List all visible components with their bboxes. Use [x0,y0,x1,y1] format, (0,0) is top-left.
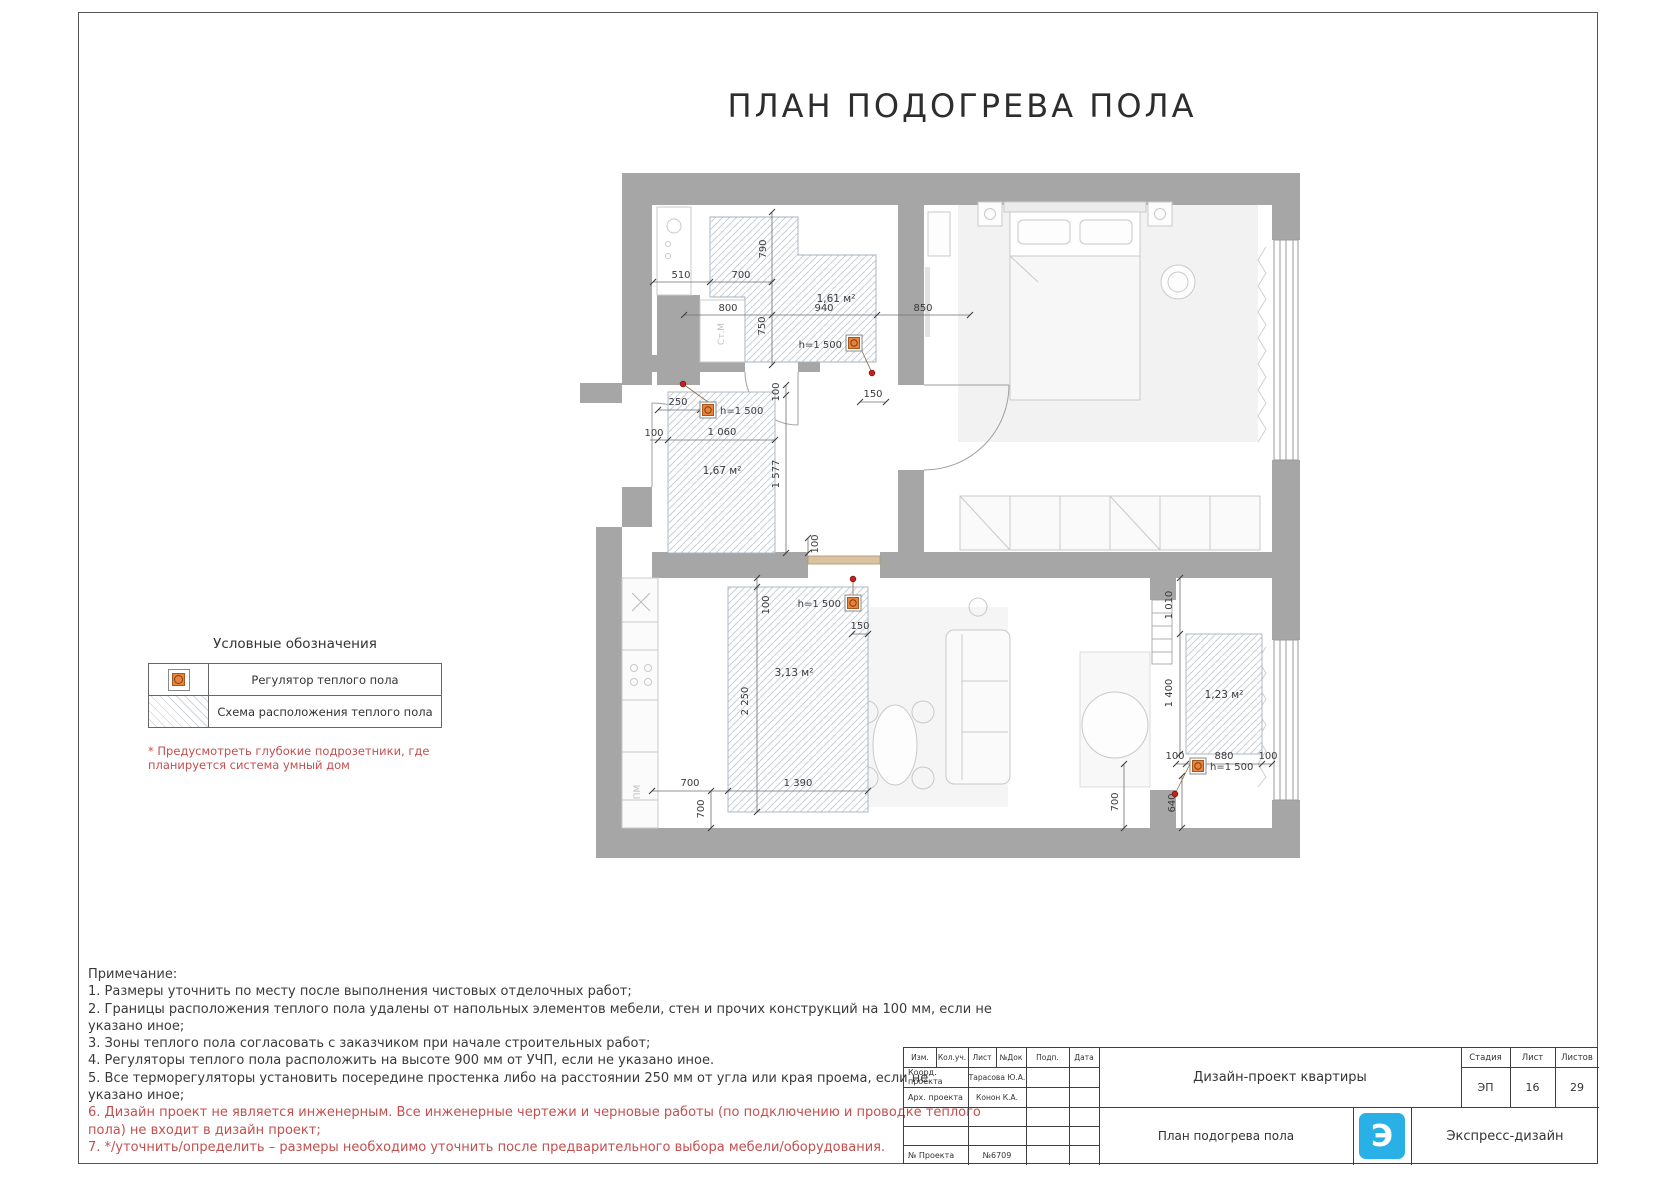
stamp-project-number: №6709 [968,1145,1026,1165]
note-line: 5. Все терморегуляторы установить посере… [88,1070,992,1087]
stamp-project-number-label: № Проекта [908,1145,968,1165]
regulator-icon [846,335,862,351]
svg-text:700: 700 [731,270,750,281]
legend-footnote: * Предусмотреть глубокие подрозетники, г… [148,744,484,772]
svg-text:1 060: 1 060 [708,427,737,438]
regulator-icon [700,402,716,418]
svg-text:h=1 500: h=1 500 [799,340,842,351]
sliding-door-panel [808,556,880,564]
stamp-stage-value: ЭП [1461,1067,1510,1107]
legend-item-label: Схема расположения теплого пола [209,696,441,727]
stamp-name-architect: Конон К.А. [968,1087,1026,1107]
regulator-icon [1190,758,1206,774]
svg-text:1 010: 1 010 [1164,591,1175,620]
svg-text:700: 700 [680,778,699,789]
note-line: 2. Границы расположения теплого пола уда… [88,1001,992,1018]
note-line: 3. Зоны теплого пола согласовать с заказ… [88,1035,992,1052]
svg-text:2 250: 2 250 [740,687,751,716]
notes-block: Примечание: 1. Размеры уточнить по месту… [88,966,992,1156]
stamp-name-coordinator: Тарасова Ю.А. [968,1067,1026,1087]
note-line: указано иное; [88,1087,992,1104]
svg-text:700: 700 [696,799,707,818]
stamp-sheet-label: Лист [1510,1048,1555,1067]
legend-row-heating-area: Схема расположения теплого пола [149,696,441,727]
svg-text:790: 790 [758,239,769,258]
svg-text:700: 700 [1110,792,1121,811]
svg-text:h=1 500: h=1 500 [1210,762,1253,773]
svg-text:880: 880 [1214,751,1233,762]
stamp-col-izm: Изм. [904,1048,936,1067]
legend-item-label: Регулятор теплого пола [209,664,441,695]
washing-machine-label: Ст.М [717,323,727,345]
svg-text:1 400: 1 400 [1164,679,1175,708]
title-block: Изм. Кол.уч. Лист №Док Подп. Дата Коорд.… [903,1047,1598,1164]
svg-text:100: 100 [1258,751,1277,762]
svg-text:1,23 м²: 1,23 м² [1205,689,1244,701]
svg-text:510: 510 [671,270,690,281]
svg-text:150: 150 [850,621,869,632]
stamp-sheet-value: 16 [1510,1067,1555,1107]
svg-text:100: 100 [644,428,663,439]
stamp-role-coordinator: Коорд. проекта [908,1067,968,1087]
floor-plan-canvas: Ст.М ПМ 1,61 м² 1,67 м² 3,13 м² 1,23 м² [578,152,1308,862]
regulator-icon [845,595,861,611]
stamp-role-architect: Арх. проекта [908,1087,968,1107]
svg-text:1 390: 1 390 [784,778,813,789]
dishwasher-label: ПМ [633,785,643,800]
svg-text:3,13 м²: 3,13 м² [775,667,814,679]
svg-text:750: 750 [757,316,768,335]
stamp-col-data: Дата [1069,1048,1099,1067]
svg-text:150: 150 [863,389,882,400]
note-line: 1. Размеры уточнить по месту после выпол… [88,983,992,1000]
svg-text:100: 100 [1165,751,1184,762]
svg-text:1,67 м²: 1,67 м² [703,465,742,477]
svg-text:h=1 500: h=1 500 [798,599,841,610]
floor-heating-regulator-icon [168,669,190,691]
svg-text:800: 800 [718,303,737,314]
legend-table: Регулятор теплого пола Схема расположени… [148,663,442,728]
company-name: Экспресс-дизайн [1411,1107,1599,1165]
svg-text:940: 940 [814,303,833,314]
note-line: указано иное; [88,1018,992,1035]
legend-title: Условные обозначения [213,636,377,652]
stamp-project-title: Дизайн-проект квартиры [1099,1048,1461,1107]
page-title: ПЛАН ПОДОГРЕВА ПОЛА [728,87,1197,125]
stamp-sheets-label: Листов [1555,1048,1599,1067]
note-line-warning: пола) не входит в дизайн проект; [88,1122,992,1139]
note-line: 4. Регуляторы теплого пола расположить н… [88,1052,992,1069]
svg-text:250: 250 [668,397,687,408]
legend-row-regulator: Регулятор теплого пола [149,664,441,696]
floor-heating-area-swatch [149,696,209,727]
note-line-warning: 6. Дизайн проект не является инженерным.… [88,1104,992,1121]
svg-text:100: 100 [810,534,821,553]
stamp-stage-label: Стадия [1461,1048,1510,1067]
drawing-sheet: ПЛАН ПОДОГРЕВА ПОЛА [0,0,1680,1187]
svg-text:1 577: 1 577 [771,460,782,489]
stamp-col-list: Лист [968,1048,996,1067]
svg-text:100: 100 [771,382,782,401]
stamp-col-koluch: Кол.уч. [936,1048,968,1067]
stamp-col-doc: №Док [996,1048,1026,1067]
svg-text:850: 850 [913,303,932,314]
note-line: Примечание: [88,966,992,983]
company-logo: Э [1359,1113,1405,1159]
stamp-col-podp: Подп. [1026,1048,1069,1067]
stamp-sheets-value: 29 [1555,1067,1599,1107]
svg-text:100: 100 [761,595,772,614]
svg-text:h=1 500: h=1 500 [720,406,763,417]
stamp-sheet-title: План подогрева пола [1099,1107,1353,1165]
note-line-warning: 7. */уточнить/определить – размеры необх… [88,1139,992,1156]
